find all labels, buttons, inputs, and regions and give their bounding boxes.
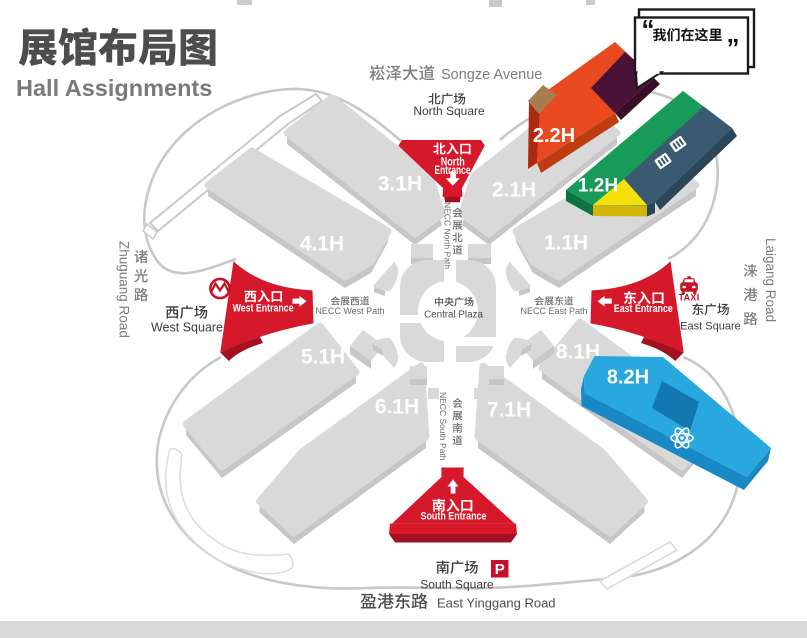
svg-text:Hall Assignments: Hall Assignments — [16, 75, 212, 101]
svg-text:”: ” — [727, 33, 740, 63]
svg-text:Songze Avenue: Songze Avenue — [441, 67, 542, 83]
svg-text:Zhuguang Road: Zhuguang Road — [117, 241, 132, 338]
svg-text:East Entrance: East Entrance — [614, 303, 673, 315]
svg-text:8.2H: 8.2H — [607, 367, 649, 389]
svg-text:East Square: East Square — [680, 321, 741, 333]
svg-text:“: “ — [642, 14, 655, 44]
svg-text:5.1H: 5.1H — [301, 346, 345, 369]
svg-text:NECC North Path: NECC North Path — [443, 202, 453, 269]
svg-text:TAXI: TAXI — [678, 293, 699, 303]
svg-text:NECC East Path: NECC East Path — [520, 306, 587, 316]
svg-text:1.2H: 1.2H — [578, 176, 618, 197]
svg-text:7.1H: 7.1H — [487, 399, 531, 422]
svg-text:North Square: North Square — [413, 104, 485, 118]
svg-text:4.1H: 4.1H — [300, 233, 344, 256]
svg-text:1.1H: 1.1H — [544, 232, 588, 255]
svg-text:3.1H: 3.1H — [378, 173, 422, 196]
svg-text:NECC South Path: NECC South Path — [438, 392, 448, 461]
svg-text:West Entrance: West Entrance — [233, 303, 294, 315]
svg-text:P: P — [495, 561, 505, 578]
svg-text:East Yinggang Road: East Yinggang Road — [437, 596, 556, 611]
svg-text:NECC West Path: NECC West Path — [315, 306, 384, 316]
svg-text:South Entrance: South Entrance — [421, 511, 487, 523]
svg-text:Laigang Road: Laigang Road — [763, 238, 778, 322]
svg-text:West Square: West Square — [151, 321, 223, 335]
svg-text:6.1H: 6.1H — [375, 396, 419, 419]
svg-text:Entrance: Entrance — [435, 163, 471, 177]
svg-text:South Square: South Square — [420, 578, 494, 592]
svg-text:2.2H: 2.2H — [533, 125, 575, 147]
svg-text:2.1H: 2.1H — [492, 179, 536, 202]
svg-text:Central Plaza: Central Plaza — [424, 310, 483, 321]
